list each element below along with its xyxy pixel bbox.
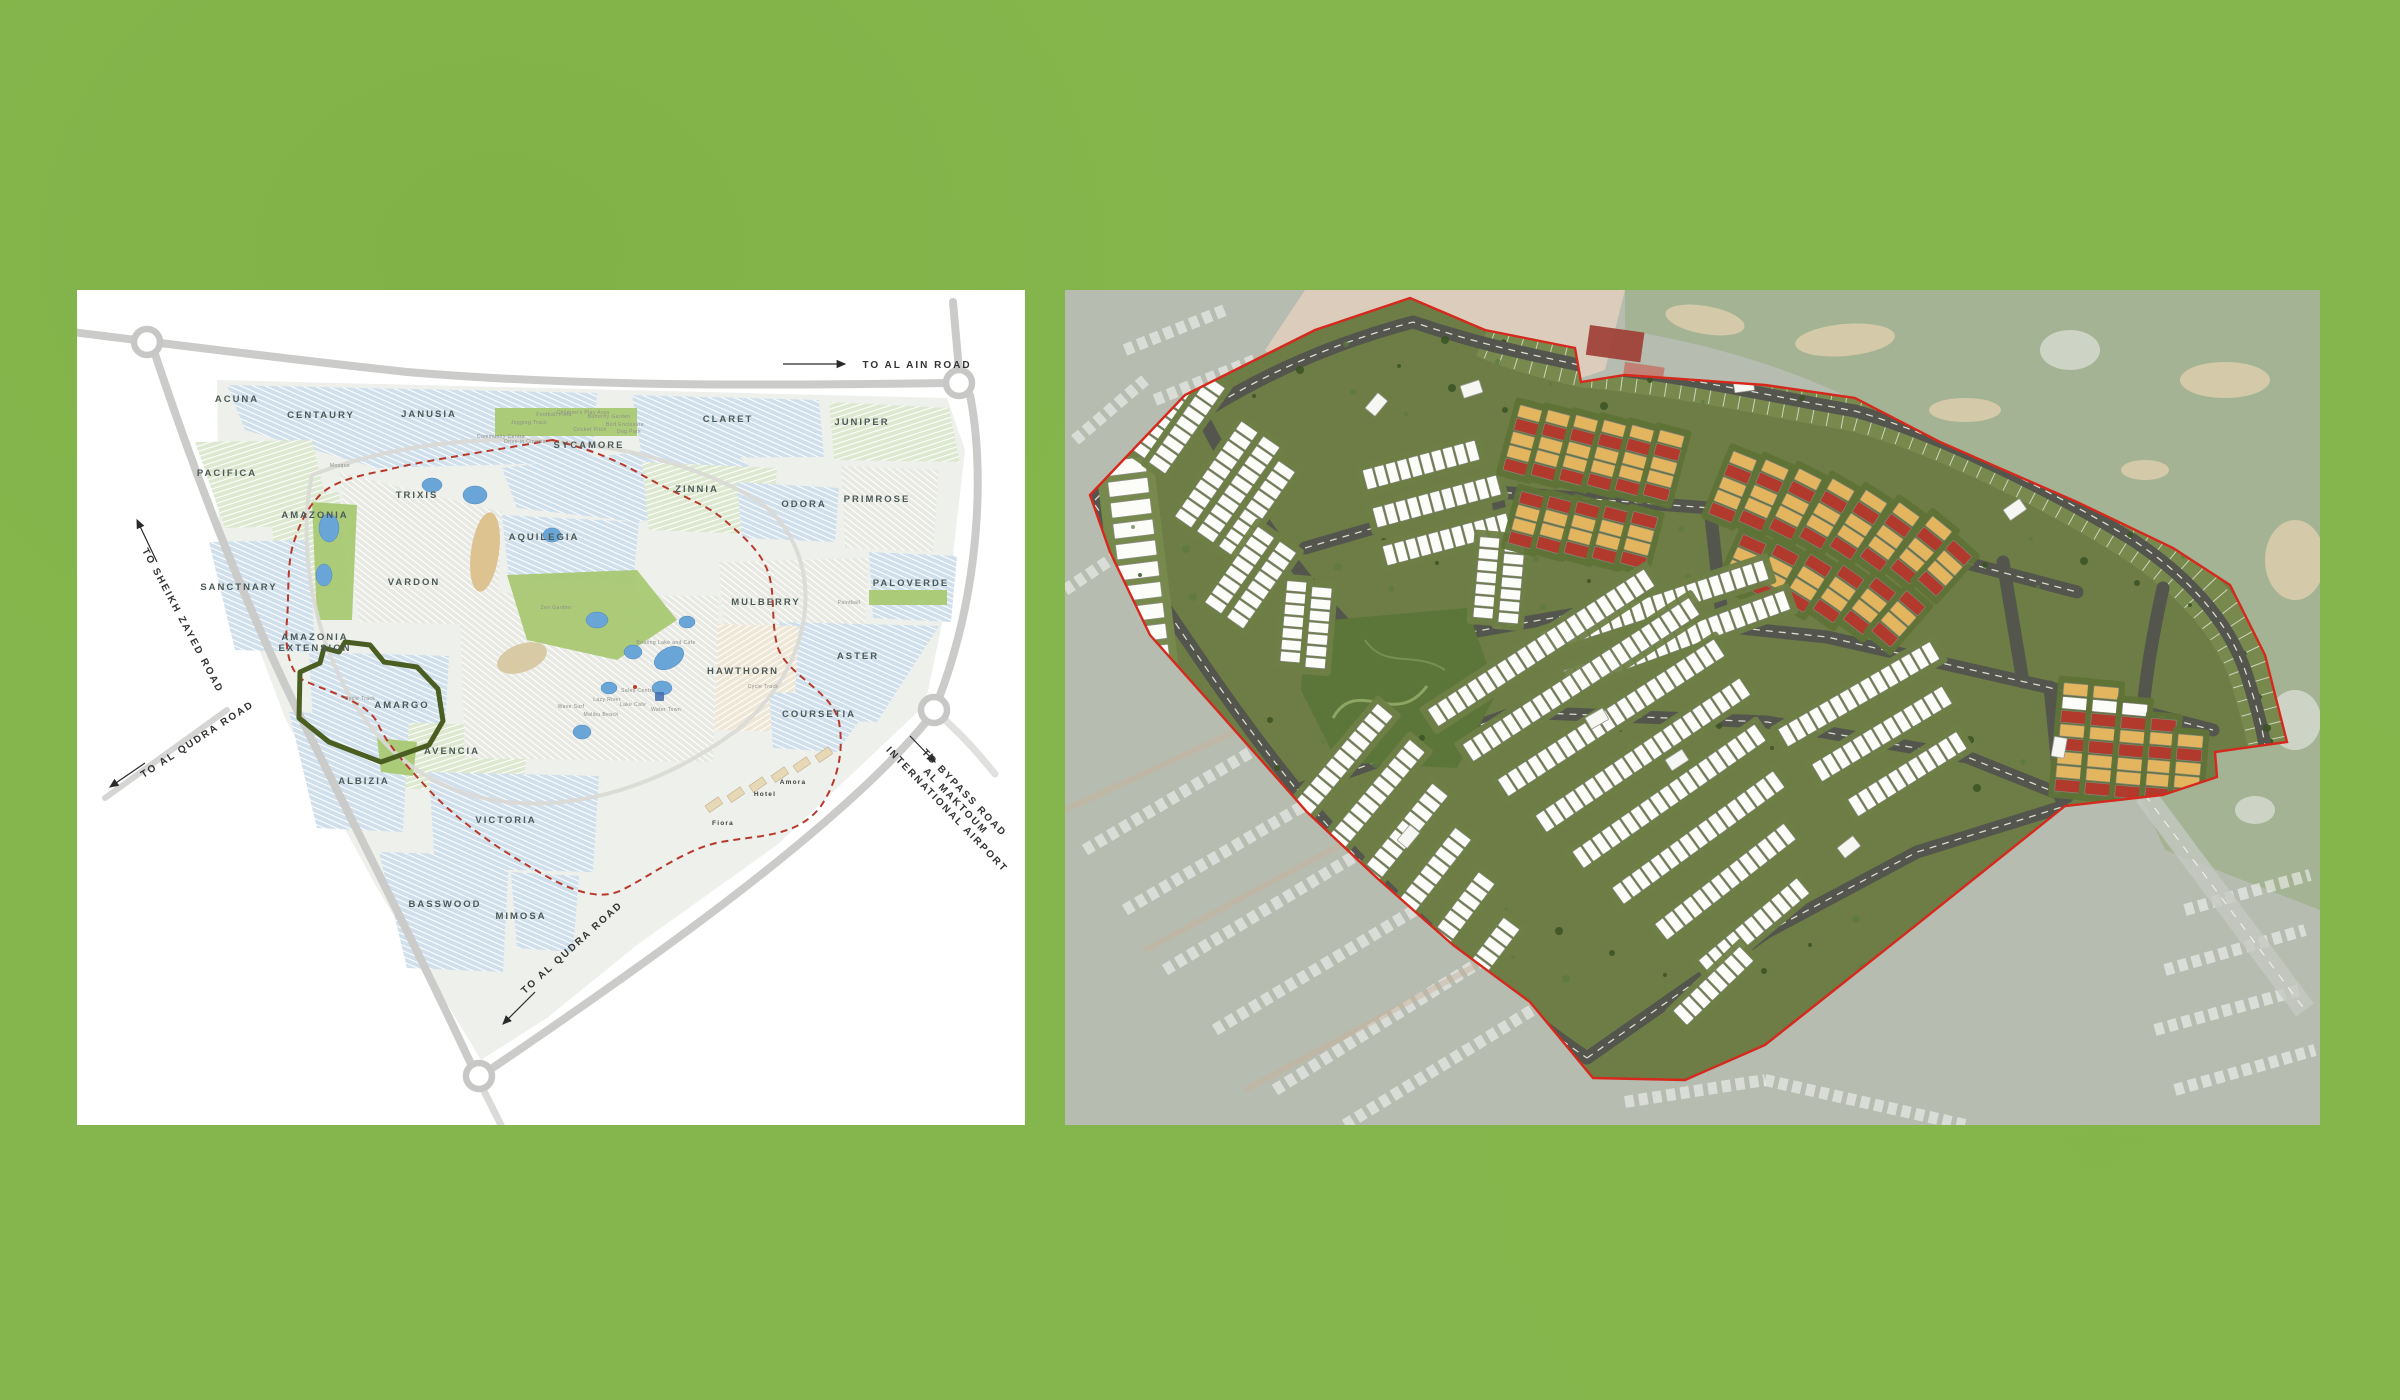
amenity-label: Drive-in Cinema: [504, 439, 546, 445]
masterplan-map-panel: ACUNACENTAURYJANUSIASYCAMORECLARETJUNIPE…: [77, 290, 1025, 1125]
district-label: SYCAMORE: [554, 440, 625, 451]
aerial-siteplan-panel: [1065, 290, 2320, 1125]
amenity-label: Dog Park: [617, 429, 641, 435]
amenity-label: Mosque: [330, 463, 350, 469]
amenity-label: Wave Surf: [558, 704, 585, 710]
district-label: AMAZONIAEXTENSION: [279, 632, 352, 654]
district-label: MIMOSA: [495, 911, 546, 922]
district-label: COURSETIA: [782, 709, 856, 720]
district-label: JANUSIA: [401, 409, 457, 420]
masterplan-map: ACUNACENTAURYJANUSIASYCAMORECLARETJUNIPE…: [77, 290, 1025, 1125]
district-label: AMARGO: [374, 700, 429, 711]
water-town-marker: [655, 692, 664, 701]
district-label: AVENCIA: [424, 746, 480, 757]
amenity-label: Bird Enclosure: [606, 422, 644, 428]
amenity-label: Zen Garden: [541, 605, 572, 611]
roundabout: [134, 329, 160, 355]
amenity-label: Jogging Track: [511, 420, 547, 426]
amenity-label: Malibu Beach: [583, 712, 618, 718]
district-label: SANCTNARY: [200, 582, 277, 593]
amenity-label: Lake Cafe: [620, 702, 646, 708]
district-label: AQUILEGIA: [509, 532, 580, 543]
amenity-label: Sales Centre: [621, 688, 655, 694]
amenity-label: Cricket Pitch: [573, 427, 606, 433]
amenity-label: Paintball: [838, 600, 861, 606]
district-label: PACIFICA: [197, 468, 257, 479]
district-label: VARDON: [388, 577, 440, 588]
district-label: ZINNIA: [675, 484, 719, 495]
amenity-label: Water Town: [651, 707, 681, 713]
roundabout: [946, 370, 972, 396]
roundabout: [921, 697, 947, 723]
amenity-label: Cycle Track: [748, 684, 779, 690]
slide-background: ACUNACENTAURYJANUSIASYCAMORECLARETJUNIPE…: [0, 0, 2400, 1400]
amenity-label: Boating Lake and Cafe: [636, 640, 695, 646]
district-label: ASTER: [837, 651, 879, 662]
roundabout: [466, 1063, 492, 1089]
district-label: AMAZONIA: [281, 510, 348, 521]
district-label: ODORA: [781, 499, 826, 510]
district-label: ALBIZIA: [338, 776, 389, 787]
district-label: ACUNA: [215, 394, 259, 405]
district-label: BASSWOOD: [409, 899, 482, 910]
district-label: PALOVERDE: [873, 578, 949, 589]
district-label: CLARET: [703, 414, 754, 425]
district-label: CENTAURY: [287, 410, 355, 421]
district-label: TRIXIS: [396, 490, 439, 501]
district-label: JUNIPER: [834, 417, 889, 428]
road-label: TO AL AIN ROAD: [862, 360, 971, 371]
district-label: MULBERRY: [731, 597, 800, 608]
amenity-label: Cycle Track: [345, 696, 376, 702]
aerial-siteplan: [1065, 290, 2320, 1125]
place-label: Fiora: [712, 820, 734, 827]
district-label: VICTORIA: [475, 815, 536, 826]
amenity-label: Butterfly Garden: [588, 414, 631, 420]
district-label: HAWTHORN: [707, 666, 779, 677]
district-label: PRIMROSE: [844, 494, 911, 505]
amenity-label: Lazy River: [593, 697, 621, 703]
place-label: Hotel: [754, 791, 776, 798]
place-label: Amora: [780, 779, 807, 786]
